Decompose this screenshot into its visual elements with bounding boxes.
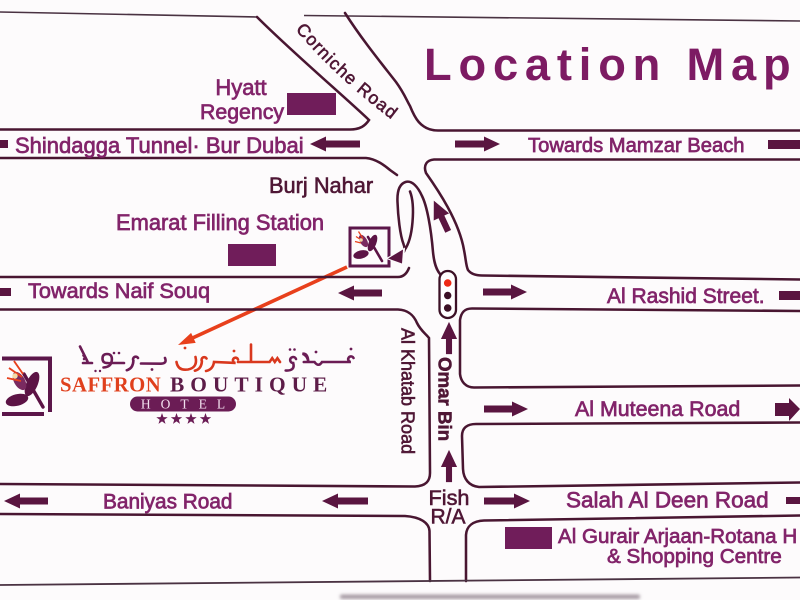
svg-text:& Shopping Centre: & Shopping Centre bbox=[607, 545, 782, 568]
svg-text:Hyatt: Hyatt bbox=[215, 75, 266, 100]
svg-text:SAFFRON: SAFFRON bbox=[60, 375, 161, 397]
svg-text:R/A: R/A bbox=[430, 506, 465, 529]
svg-text:Al Rashid Street.: Al Rashid Street. bbox=[607, 285, 765, 308]
svg-text:Burj Nahar: Burj Nahar bbox=[269, 173, 373, 198]
svg-text:Al Muteena Road: Al Muteena Road bbox=[575, 397, 740, 421]
svg-text:Regency: Regency bbox=[200, 100, 284, 124]
svg-text:Salah Al Deen Road: Salah Al Deen Road bbox=[566, 488, 769, 513]
svg-text:Baniyas Road: Baniyas Road bbox=[103, 491, 232, 514]
svg-text:Location Map: Location Map bbox=[424, 39, 798, 90]
svg-text:Towards Mamzar Beach: Towards Mamzar Beach bbox=[528, 135, 745, 157]
svg-text:Emarat Filling Station: Emarat Filling Station bbox=[116, 210, 324, 235]
svg-text:BOUTIQUE: BOUTIQUE bbox=[170, 373, 333, 397]
svg-text:HOTEL: HOTEL bbox=[141, 397, 235, 412]
svg-text:Towards Naif Souq: Towards Naif Souq bbox=[28, 278, 210, 303]
svg-text:Omar Bin: Omar Bin bbox=[435, 357, 456, 441]
svg-text:Shindagga Tunnel· Bur Dubai: Shindagga Tunnel· Bur Dubai bbox=[15, 133, 304, 158]
svg-text:Al Khatab Road: Al Khatab Road bbox=[398, 328, 418, 454]
